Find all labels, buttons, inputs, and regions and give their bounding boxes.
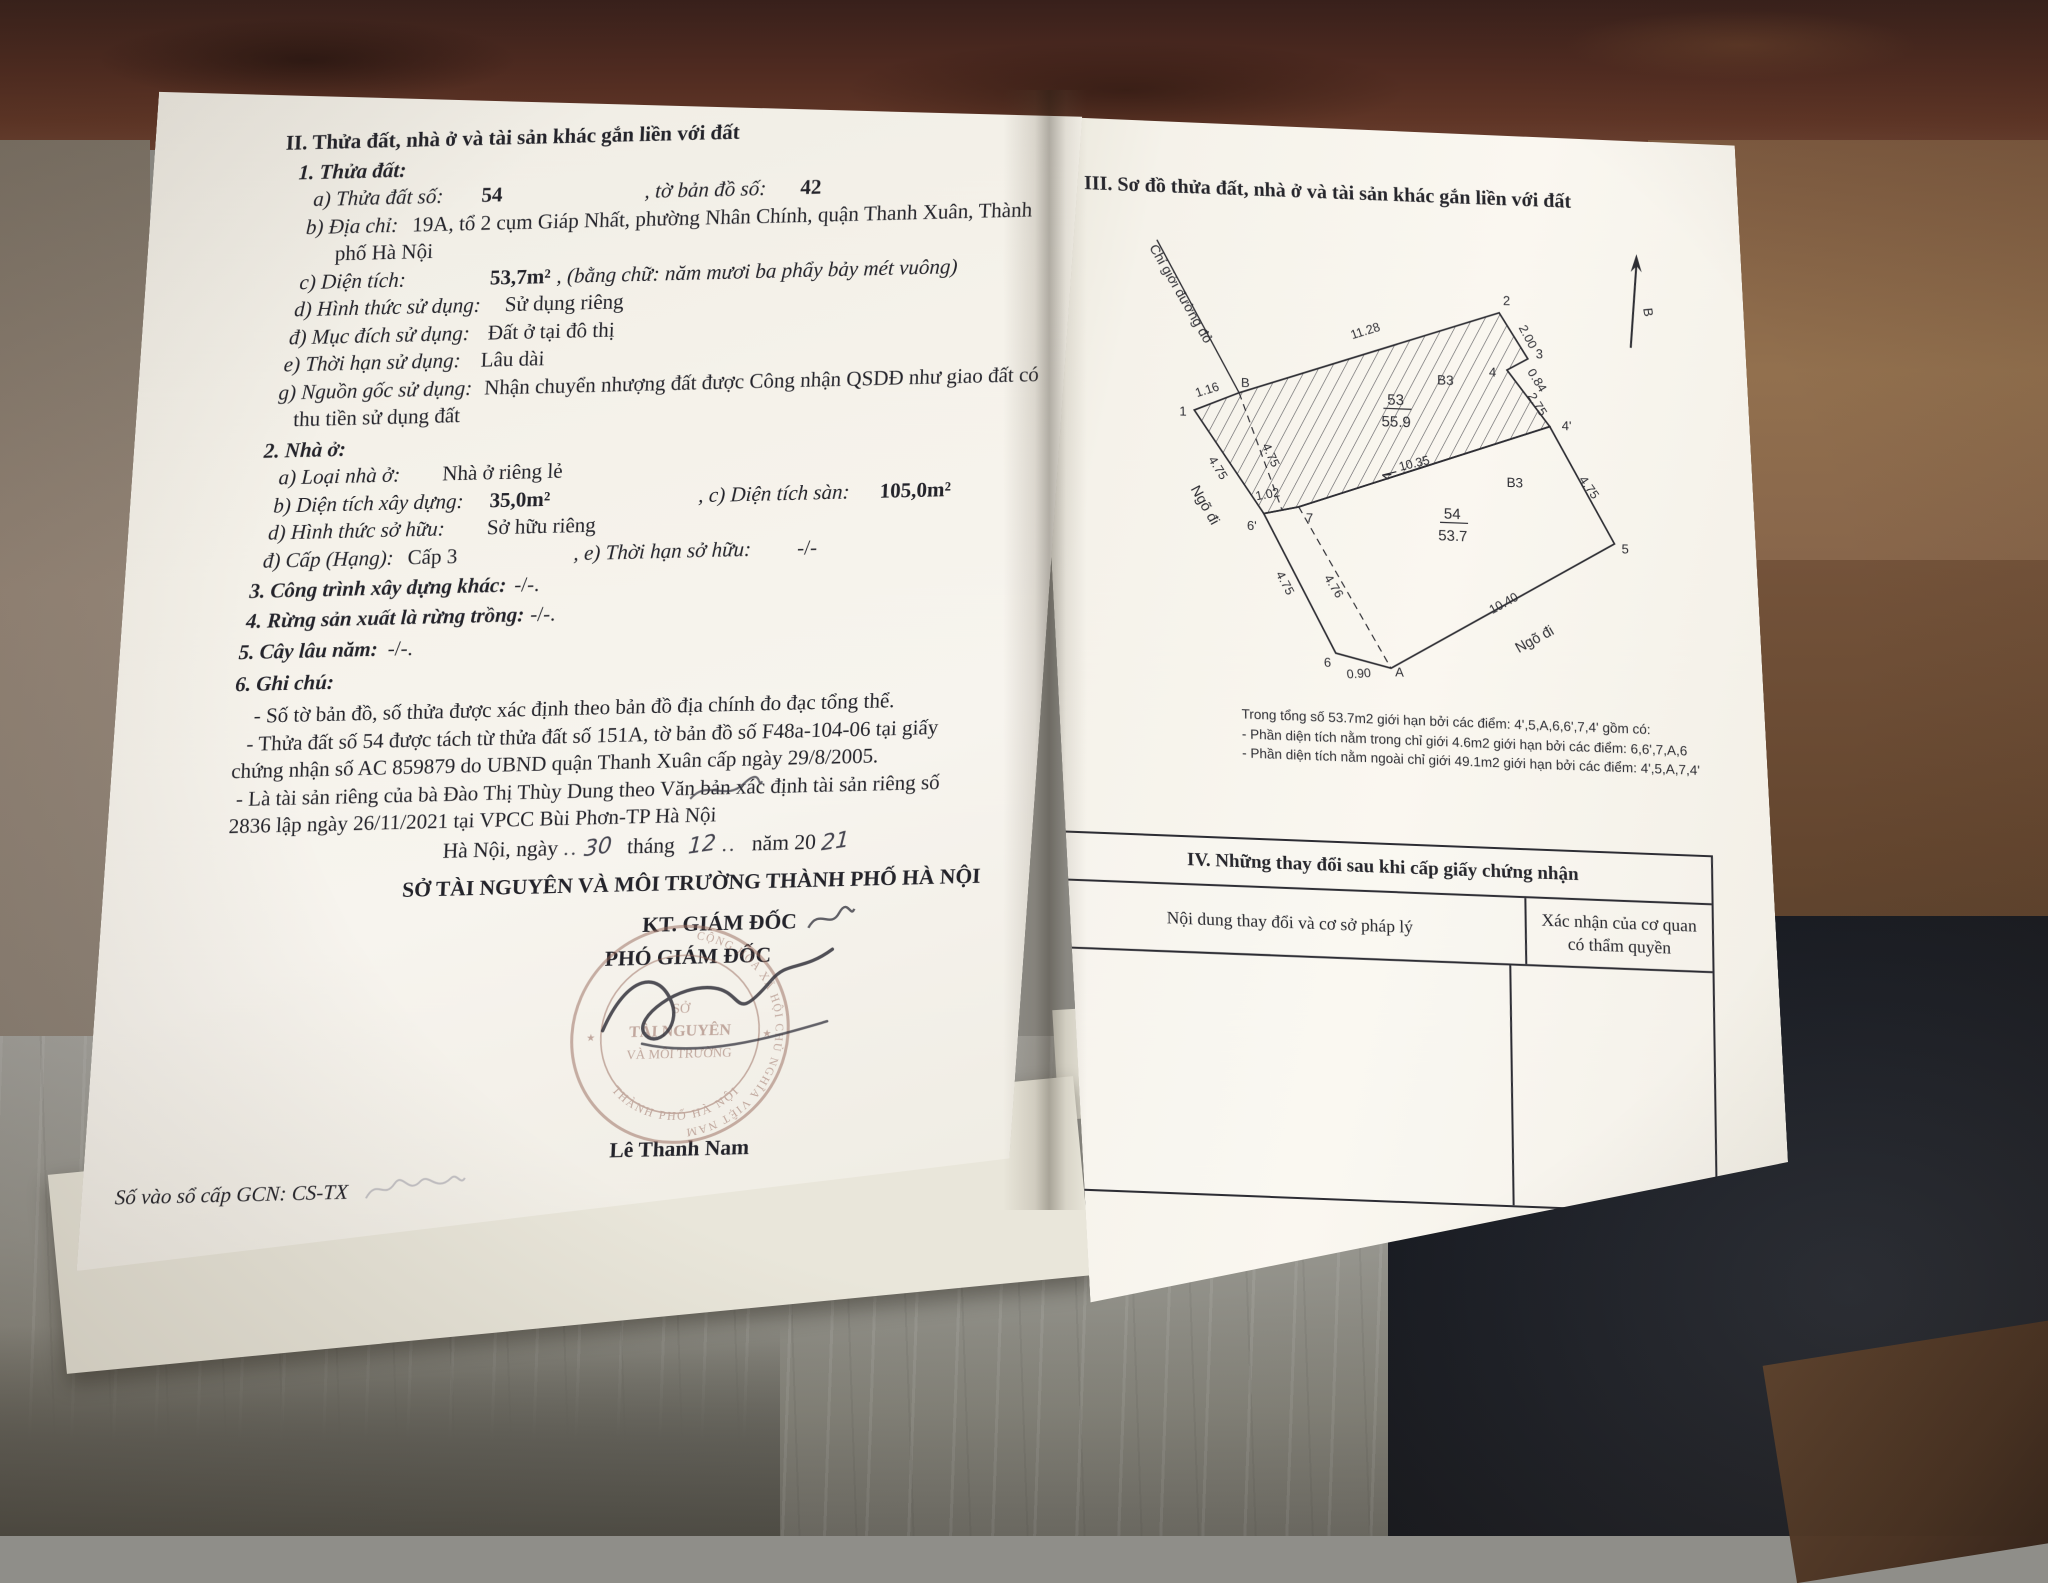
zone-b3-lower: B3 (1506, 475, 1523, 491)
doc-text-segment: 3. Công trình xây dựng khác: (249, 572, 507, 606)
point-4: 4 (1489, 364, 1496, 379)
doc-text-segment: b) Địa chỉ: (305, 211, 399, 241)
changes-table-empty-body (1056, 948, 1716, 1213)
date-year-label: năm 20 (751, 830, 816, 857)
faint-handwritten-number (357, 1168, 469, 1209)
north-label: B (1640, 307, 1656, 317)
doc-text-segment: 1. Thửa đất: (298, 156, 407, 186)
doc-text-segment: 105,0m² (879, 476, 951, 505)
dim-0.90: 0.90 (1346, 666, 1372, 682)
alley-bottom-label: Ngõ đi (1513, 623, 1557, 657)
doc-text-segment: , c) Diện tích sàn: (698, 478, 851, 509)
doc-text-segment: a) Thửa đất số: (313, 183, 444, 214)
dim-4.75-right: 4.75 (1576, 474, 1602, 502)
date-month-label: tháng (627, 833, 676, 859)
zone-b3-upper: B3 (1437, 372, 1454, 388)
doc-text-segment: d) Hình thức sở hữu: (268, 515, 446, 547)
doc-text-segment: -/-. (530, 600, 556, 628)
doc-text-segment: đ) Cấp (Hạng): (262, 544, 394, 575)
doc-text-segment: phố Hà Nội (334, 238, 433, 268)
dim-1.16: 1.16 (1193, 380, 1221, 400)
point-B: B (1241, 375, 1250, 390)
doc-text-segment: 54 (481, 181, 503, 209)
doc-text-segment: c) Diện tích: (299, 266, 407, 296)
doc-text-segment: -/-. (387, 635, 413, 663)
doc-text-segment: -/- (797, 534, 818, 562)
red-line-dashed-lower (1299, 507, 1391, 668)
doc-text-segment: Đất ở tại đô thị (487, 316, 615, 347)
issuing-agency: SỞ TÀI NGUYÊN VÀ MÔI TRƯỜNG THÀNH PHỐ HÀ… (320, 862, 1062, 905)
doc-text-segment: Sở hữu riêng (486, 512, 596, 542)
handwritten-month: 12 (688, 830, 718, 859)
doc-text-segment: 42 (800, 174, 822, 202)
red-line-label: Chỉ giới đường đỏ (1146, 242, 1215, 346)
point-6p: 6' (1247, 518, 1257, 533)
doc-text-segment: 2. Nhà ở: (263, 435, 346, 464)
handwritten-year: 21 (821, 827, 851, 856)
note-signature-squiggle (685, 773, 767, 809)
gcn-book-number-text: Số vào sổ cấp GCN: CS-TX (114, 1180, 348, 1210)
parcel-54-underline (1440, 522, 1468, 523)
doc-text-segment: thu tiền sử dụng đất (293, 402, 461, 434)
left-page-text: II. Thửa đất, nhà ở và tài sản khác gắn … (228, 111, 1041, 840)
gcn-book-number: Số vào sổ cấp GCN: CS-TX (114, 1168, 469, 1215)
point-4p: 4' (1562, 418, 1572, 433)
parcel-diagram: Chỉ giới đường đỏ B 1 B 2 3 4 4' 5 6 6' … (1134, 211, 1682, 731)
dim-4.75-lower: 4.75 (1273, 569, 1297, 597)
point-A: A (1395, 664, 1404, 679)
handwritten-day: 30 (583, 833, 613, 862)
changes-table: IV. Những thay đổi sau khi cấp giấy chứn… (1052, 830, 1718, 1215)
point-3: 3 (1536, 346, 1543, 361)
doc-text-segment: , e) Thời hạn sở hữu: (573, 535, 752, 567)
doc-text-segment: -/-. (514, 571, 540, 599)
date-prefix: Hà Nội, ngày (442, 836, 559, 864)
doc-text-segment: 4. Rừng sản xuất là rừng trồng: (246, 601, 525, 635)
director-signature (582, 926, 879, 1083)
point-1: 1 (1179, 403, 1186, 418)
doc-text-segment: 6. Ghi chú: (235, 668, 335, 698)
parcel-53-number: 53 (1387, 391, 1404, 409)
doc-text-segment: , tờ bản đồ số: (644, 175, 767, 205)
changes-table-empty-cell (1511, 965, 1716, 1213)
north-arrow (1630, 262, 1638, 348)
parcel-54-area: 53.7 (1438, 527, 1467, 545)
date-dots: .. (563, 836, 579, 860)
changes-table-empty-cell (1056, 948, 1515, 1205)
certificate-right-page: III. Sơ đồ thửa đất, nhà ở và tài sản kh… (1028, 112, 1796, 1312)
parcel-54-number: 54 (1444, 505, 1461, 523)
doc-text-segment: e) Thời hạn sử dụng: (283, 347, 461, 379)
doc-text-segment: 5. Cây lâu năm: (238, 636, 378, 667)
point-5: 5 (1621, 541, 1628, 556)
dim-11.28: 11.28 (1349, 320, 1382, 342)
alley-left-label: Ngõ đi (1187, 483, 1222, 528)
point-2: 2 (1503, 293, 1510, 308)
doc-text-segment: Lâu dài (480, 345, 545, 374)
brown-box (1763, 1319, 2048, 1583)
date-dots: .. (721, 832, 737, 856)
doc-text-segment: a) Loại nhà ở: (278, 461, 401, 491)
doc-text-segment: Cấp 3 (407, 542, 458, 571)
doc-text-segment: Sử dụng riêng (504, 288, 624, 318)
doc-text-segment: Nhà ở riêng lẻ (442, 458, 564, 488)
doc-text-segment: 35,0m² (489, 485, 551, 514)
certificate-left-page: II. Thửa đất, nhà ở và tài sản khác gắn … (77, 86, 1085, 1271)
doc-text-segment: 53,7m² (489, 263, 551, 292)
point-7: 7 (1306, 510, 1313, 525)
parcel-53-area: 55.9 (1381, 413, 1410, 431)
dim-10.40: 10.40 (1487, 590, 1521, 617)
changes-table-col2-header: Xác nhận của cơ quan có thẩm quyền (1526, 898, 1713, 971)
point-6: 6 (1324, 655, 1331, 670)
dim-4.76: 4.76 (1321, 572, 1346, 600)
